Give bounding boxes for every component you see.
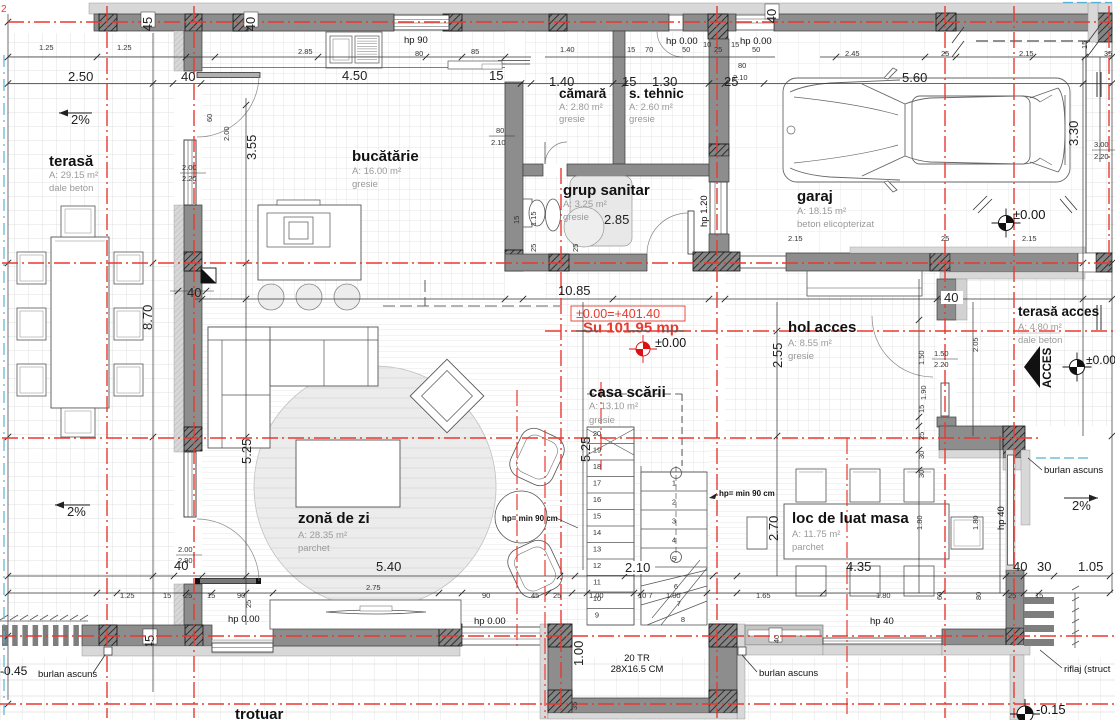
svg-text:1.40: 1.40 xyxy=(560,45,575,54)
svg-text:19: 19 xyxy=(593,446,601,455)
svg-text:1.25: 1.25 xyxy=(39,43,54,52)
svg-text:80: 80 xyxy=(496,126,504,135)
svg-text:70: 70 xyxy=(645,45,653,54)
svg-text:2.20: 2.20 xyxy=(934,360,949,369)
svg-text:2.10: 2.10 xyxy=(491,138,506,147)
svg-text:40: 40 xyxy=(243,17,258,31)
svg-text:parchet: parchet xyxy=(298,543,330,554)
svg-text:Su 101.95 mp: Su 101.95 mp xyxy=(583,320,679,337)
svg-text:2.15: 2.15 xyxy=(788,234,803,243)
svg-text:12: 12 xyxy=(593,561,601,570)
svg-text:terasă acces: terasă acces xyxy=(1018,304,1099,319)
svg-text:40: 40 xyxy=(181,69,195,84)
svg-text:15: 15 xyxy=(163,591,171,600)
svg-text:burlan ascuns: burlan ascuns xyxy=(1044,465,1103,476)
svg-text:casa scării: casa scării xyxy=(589,384,666,401)
svg-text:A: 29.15 m²: A: 29.15 m² xyxy=(49,170,98,181)
svg-text:hp 0.00: hp 0.00 xyxy=(666,36,698,47)
svg-text:A: 28.35 m²: A: 28.35 m² xyxy=(298,530,347,541)
svg-text:60: 60 xyxy=(935,592,944,600)
svg-text:15: 15 xyxy=(1035,591,1043,600)
svg-text:A: 18.15 m²: A: 18.15 m² xyxy=(797,206,846,217)
svg-text:25: 25 xyxy=(941,49,949,58)
svg-text:2%: 2% xyxy=(71,112,90,127)
svg-text:hp 90: hp 90 xyxy=(404,35,428,46)
svg-text:2.10: 2.10 xyxy=(625,560,650,575)
svg-text:2.00: 2.00 xyxy=(178,545,193,554)
svg-text:2.75: 2.75 xyxy=(366,583,381,592)
svg-text:90: 90 xyxy=(482,591,490,600)
svg-text:15: 15 xyxy=(731,40,739,49)
svg-text:40: 40 xyxy=(772,635,781,643)
svg-text:hp= min 90 cm: hp= min 90 cm xyxy=(719,489,775,498)
svg-text:15: 15 xyxy=(627,45,635,54)
svg-text:35: 35 xyxy=(1104,49,1112,58)
svg-text:±0.00: ±0.00 xyxy=(1013,207,1045,222)
svg-text:loc de luat masa: loc de luat masa xyxy=(792,510,909,527)
svg-text:±0.00: ±0.00 xyxy=(1086,353,1115,367)
svg-text:15: 15 xyxy=(1080,41,1089,49)
svg-text:1.15: 1.15 xyxy=(529,211,538,226)
svg-text:riflaj (struct: riflaj (struct xyxy=(1064,664,1111,675)
svg-text:-0.45: -0.45 xyxy=(0,664,28,678)
svg-text:40: 40 xyxy=(174,558,188,573)
svg-text:4.50: 4.50 xyxy=(342,68,367,83)
svg-text:hp 0.00: hp 0.00 xyxy=(228,614,260,625)
svg-text:40: 40 xyxy=(187,285,201,300)
svg-text:80: 80 xyxy=(415,49,423,58)
svg-text:2.05: 2.05 xyxy=(971,337,980,352)
svg-text:4.35: 4.35 xyxy=(846,559,871,574)
svg-text:grup sanitar: grup sanitar xyxy=(563,182,650,199)
svg-text:hp= min 90 cm: hp= min 90 cm xyxy=(502,514,558,523)
svg-text:20: 20 xyxy=(593,429,601,438)
svg-text:A: 2.60 m²: A: 2.60 m² xyxy=(629,102,673,113)
svg-text:gresie: gresie xyxy=(788,351,814,362)
svg-text:2%: 2% xyxy=(1072,498,1091,513)
svg-text:A: 4.80 m²: A: 4.80 m² xyxy=(1018,322,1062,333)
svg-text:25: 25 xyxy=(1008,591,1016,600)
svg-text:18: 18 xyxy=(593,462,601,471)
svg-text:2.20: 2.20 xyxy=(182,174,197,183)
svg-text:A: 3.25 m²: A: 3.25 m² xyxy=(563,199,607,210)
svg-text:5.40: 5.40 xyxy=(376,559,401,574)
svg-text:hol acces: hol acces xyxy=(788,319,856,336)
svg-text:14: 14 xyxy=(593,528,601,537)
svg-text:15: 15 xyxy=(622,74,636,89)
svg-text:1: 1 xyxy=(672,479,676,488)
svg-text:trotuar: trotuar xyxy=(235,706,283,720)
svg-text:garaj: garaj xyxy=(797,188,833,205)
svg-text:25: 25 xyxy=(553,591,561,600)
svg-text:10: 10 xyxy=(703,40,711,49)
svg-text:1.80: 1.80 xyxy=(876,591,891,600)
svg-text:±0.00: ±0.00 xyxy=(655,336,686,350)
svg-text:35: 35 xyxy=(570,702,579,710)
svg-text:1.50: 1.50 xyxy=(917,350,926,365)
svg-text:25: 25 xyxy=(917,432,926,440)
svg-text:2.20: 2.20 xyxy=(1094,152,1109,161)
svg-text:15: 15 xyxy=(593,512,601,521)
svg-text:45: 45 xyxy=(140,17,155,31)
svg-text:40: 40 xyxy=(944,290,958,305)
svg-text:2.45: 2.45 xyxy=(845,49,860,58)
svg-text:8: 8 xyxy=(681,615,685,624)
svg-text:80: 80 xyxy=(738,61,746,70)
svg-text:15: 15 xyxy=(489,68,503,83)
svg-text:2%: 2% xyxy=(67,504,86,519)
svg-text:bucătărie: bucătărie xyxy=(352,148,419,165)
svg-text:A: 11.75 m²: A: 11.75 m² xyxy=(792,529,840,540)
svg-text:20 TR: 20 TR xyxy=(624,653,650,664)
svg-text:6: 6 xyxy=(674,582,678,591)
svg-text:burlan ascuns: burlan ascuns xyxy=(38,669,97,680)
svg-text:2.70: 2.70 xyxy=(766,516,781,541)
svg-text:80: 80 xyxy=(974,592,983,600)
svg-text:hp 40: hp 40 xyxy=(870,616,894,627)
svg-text:1.50: 1.50 xyxy=(934,349,949,358)
svg-text:zonă de zi: zonă de zi xyxy=(298,510,370,527)
svg-text:1.05: 1.05 xyxy=(1078,559,1103,574)
svg-text:1.90: 1.90 xyxy=(919,385,928,400)
svg-text:25: 25 xyxy=(529,244,538,252)
svg-text:40: 40 xyxy=(764,9,779,23)
svg-text:2: 2 xyxy=(672,498,676,507)
svg-text:hp 40: hp 40 xyxy=(996,506,1007,530)
svg-text:30: 30 xyxy=(917,470,926,478)
svg-text:gresie: gresie xyxy=(589,415,615,426)
svg-text:A: 16.00 m²: A: 16.00 m² xyxy=(352,166,401,177)
svg-text:2.00: 2.00 xyxy=(182,163,197,172)
svg-text:40: 40 xyxy=(1013,559,1027,574)
svg-text:parchet: parchet xyxy=(792,542,824,553)
svg-text:1.25: 1.25 xyxy=(120,591,135,600)
svg-text:gresie: gresie xyxy=(559,114,585,125)
svg-text:1.30: 1.30 xyxy=(652,74,677,89)
svg-text:2.15: 2.15 xyxy=(1022,234,1037,243)
svg-text:25: 25 xyxy=(941,234,949,243)
svg-text:2.50: 2.50 xyxy=(68,69,93,84)
svg-text:60: 60 xyxy=(205,114,214,122)
svg-text:25: 25 xyxy=(184,591,192,600)
svg-text:3.55: 3.55 xyxy=(244,135,259,160)
svg-text:2.15: 2.15 xyxy=(1019,49,1034,58)
svg-text:25: 25 xyxy=(244,600,253,608)
svg-text:ACCES: ACCES xyxy=(1042,347,1054,388)
svg-text:burlan ascuns: burlan ascuns xyxy=(759,668,818,679)
svg-text:3: 3 xyxy=(672,517,676,526)
svg-text:3.00: 3.00 xyxy=(1094,140,1109,149)
svg-text:terasă: terasă xyxy=(49,153,94,170)
svg-text:A: 13.10 m²: A: 13.10 m² xyxy=(589,401,638,412)
svg-text:hp 0.00: hp 0.00 xyxy=(740,36,772,47)
svg-text:10.85: 10.85 xyxy=(558,283,591,298)
svg-text:2.85: 2.85 xyxy=(298,47,313,56)
svg-text:15: 15 xyxy=(207,591,215,600)
svg-text:30: 30 xyxy=(917,451,926,459)
svg-text:45: 45 xyxy=(531,591,539,600)
svg-text:hp 1.20: hp 1.20 xyxy=(699,195,710,227)
svg-text:1.00: 1.00 xyxy=(589,591,604,600)
svg-text:beton elicopterizat: beton elicopterizat xyxy=(797,219,874,230)
svg-text:2.10: 2.10 xyxy=(733,73,748,82)
svg-text:1.25: 1.25 xyxy=(117,43,132,52)
svg-text:25: 25 xyxy=(571,244,580,252)
svg-text:A: 8.55 m²: A: 8.55 m² xyxy=(788,338,832,349)
svg-text:25: 25 xyxy=(714,45,722,54)
svg-text:15: 15 xyxy=(917,405,926,413)
svg-text:30: 30 xyxy=(1037,559,1051,574)
svg-text:5.60: 5.60 xyxy=(902,70,927,85)
svg-text:90: 90 xyxy=(237,591,245,600)
svg-text:5.25: 5.25 xyxy=(239,439,254,464)
svg-text:15: 15 xyxy=(512,216,521,224)
svg-text:1.40: 1.40 xyxy=(549,74,574,89)
svg-text:1.00: 1.00 xyxy=(666,591,681,600)
svg-text:dale beton: dale beton xyxy=(49,183,93,194)
svg-text:1.80: 1.80 xyxy=(915,515,924,530)
svg-text:-0.15: -0.15 xyxy=(1036,702,1066,717)
svg-text:11: 11 xyxy=(593,578,601,587)
svg-text:2: 2 xyxy=(1,4,7,15)
svg-text:gresie: gresie xyxy=(629,114,655,125)
svg-text:2.00: 2.00 xyxy=(222,126,231,141)
svg-text:13: 13 xyxy=(593,545,601,554)
svg-text:5.25: 5.25 xyxy=(578,437,593,462)
svg-text:9: 9 xyxy=(595,611,599,620)
svg-text:4: 4 xyxy=(672,536,676,545)
svg-text:7: 7 xyxy=(677,599,681,608)
svg-text:16: 16 xyxy=(593,495,601,504)
svg-text:2.55: 2.55 xyxy=(770,343,785,368)
svg-text:1.00: 1.00 xyxy=(571,641,586,666)
svg-text:gresie: gresie xyxy=(563,212,589,223)
svg-text:28X16.5 CM: 28X16.5 CM xyxy=(611,664,664,675)
svg-text:1.80: 1.80 xyxy=(971,515,980,530)
svg-text:hp 0.00: hp 0.00 xyxy=(474,616,506,627)
svg-text:10 7: 10 7 xyxy=(638,591,653,600)
svg-text:dale beton: dale beton xyxy=(1018,335,1062,346)
svg-text:2.85: 2.85 xyxy=(604,212,629,227)
svg-text:85: 85 xyxy=(471,47,479,56)
svg-text:17: 17 xyxy=(593,479,601,488)
svg-text:3.30: 3.30 xyxy=(1066,121,1081,146)
svg-text:1.65: 1.65 xyxy=(756,591,771,600)
svg-text:8.70: 8.70 xyxy=(140,305,155,330)
svg-text:gresie: gresie xyxy=(352,179,378,190)
svg-text:A: 2.80 m²: A: 2.80 m² xyxy=(559,102,603,113)
